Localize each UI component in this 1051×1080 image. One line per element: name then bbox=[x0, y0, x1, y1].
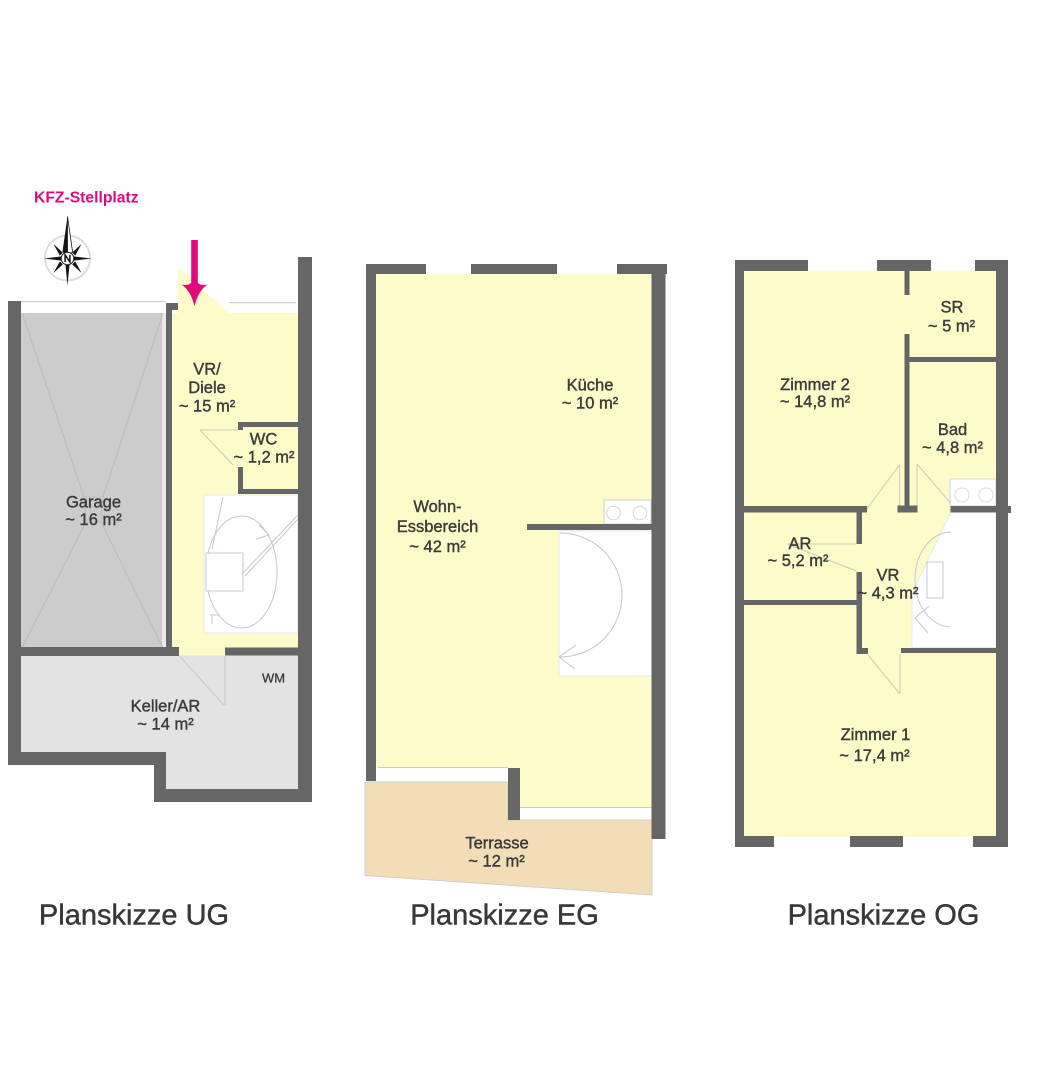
svg-text:~ 14,8 m²: ~ 14,8 m² bbox=[780, 393, 851, 411]
svg-text:Essbereich: Essbereich bbox=[397, 518, 479, 536]
svg-text:~ 12 m²: ~ 12 m² bbox=[468, 853, 525, 871]
svg-text:~ 10 m²: ~ 10 m² bbox=[562, 395, 619, 413]
svg-text:~ 4,3 m²: ~ 4,3 m² bbox=[858, 585, 919, 603]
svg-text:~ 42 m²: ~ 42 m² bbox=[409, 538, 466, 556]
svg-text:~ 15 m²: ~ 15 m² bbox=[179, 398, 236, 416]
svg-text:Planskizze OG: Planskizze OG bbox=[788, 900, 980, 932]
svg-text:Diele: Diele bbox=[188, 379, 226, 397]
svg-text:KFZ-Stellplatz: KFZ-Stellplatz bbox=[34, 190, 139, 207]
svg-text:~ 4,8 m²: ~ 4,8 m² bbox=[922, 439, 983, 457]
svg-text:~ 17,4 m²: ~ 17,4 m² bbox=[839, 747, 910, 765]
svg-text:~ 5 m²: ~ 5 m² bbox=[928, 318, 976, 336]
svg-text:WC: WC bbox=[250, 431, 278, 449]
svg-text:Bad: Bad bbox=[938, 421, 967, 439]
svg-text:~ 16 m²: ~ 16 m² bbox=[65, 511, 122, 529]
svg-text:VR/: VR/ bbox=[193, 361, 221, 379]
svg-text:Terrasse: Terrasse bbox=[465, 835, 528, 853]
svg-text:SR: SR bbox=[941, 299, 964, 317]
svg-text:Zimmer 1: Zimmer 1 bbox=[841, 726, 911, 744]
svg-text:Garage: Garage bbox=[66, 494, 121, 512]
svg-text:WM: WM bbox=[262, 671, 285, 686]
svg-text:Planskizze EG: Planskizze EG bbox=[410, 900, 599, 932]
svg-text:Keller/AR: Keller/AR bbox=[131, 698, 201, 716]
svg-text:Küche: Küche bbox=[567, 377, 614, 395]
svg-text:AR: AR bbox=[789, 535, 812, 553]
svg-text:~ 5,2 m²: ~ 5,2 m² bbox=[768, 552, 829, 570]
svg-text:Zimmer 2: Zimmer 2 bbox=[780, 376, 850, 394]
svg-text:Wohn-: Wohn- bbox=[413, 498, 461, 516]
svg-text:~ 1,2 m²: ~ 1,2 m² bbox=[234, 449, 295, 467]
svg-text:VR: VR bbox=[877, 567, 900, 585]
svg-text:~ 14 m²: ~ 14 m² bbox=[137, 716, 194, 734]
svg-text:Planskizze UG: Planskizze UG bbox=[39, 900, 229, 932]
